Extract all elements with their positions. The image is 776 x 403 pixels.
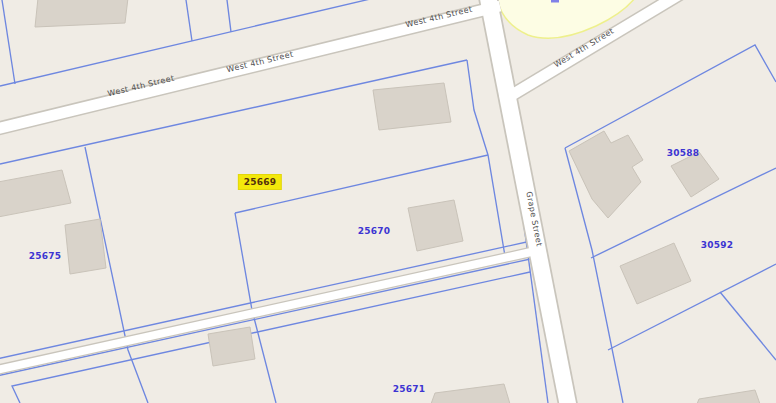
- parcel-label-25669-selected[interactable]: 25669: [239, 175, 281, 189]
- parcel-label-25670[interactable]: 25670: [358, 226, 390, 236]
- map-canvas[interactable]: West 4th Street West 4th Street West 4th…: [0, 0, 776, 403]
- parcel-label-30592[interactable]: 30592: [701, 240, 733, 250]
- clipped-label-fragment: [551, 0, 559, 3]
- map-geometry: [0, 0, 776, 403]
- parcel-label-30588[interactable]: 30588: [667, 148, 699, 158]
- parcel-label-25675[interactable]: 25675: [29, 251, 61, 261]
- roads-layer: [0, 0, 695, 403]
- parcel-label-25671[interactable]: 25671: [393, 384, 425, 394]
